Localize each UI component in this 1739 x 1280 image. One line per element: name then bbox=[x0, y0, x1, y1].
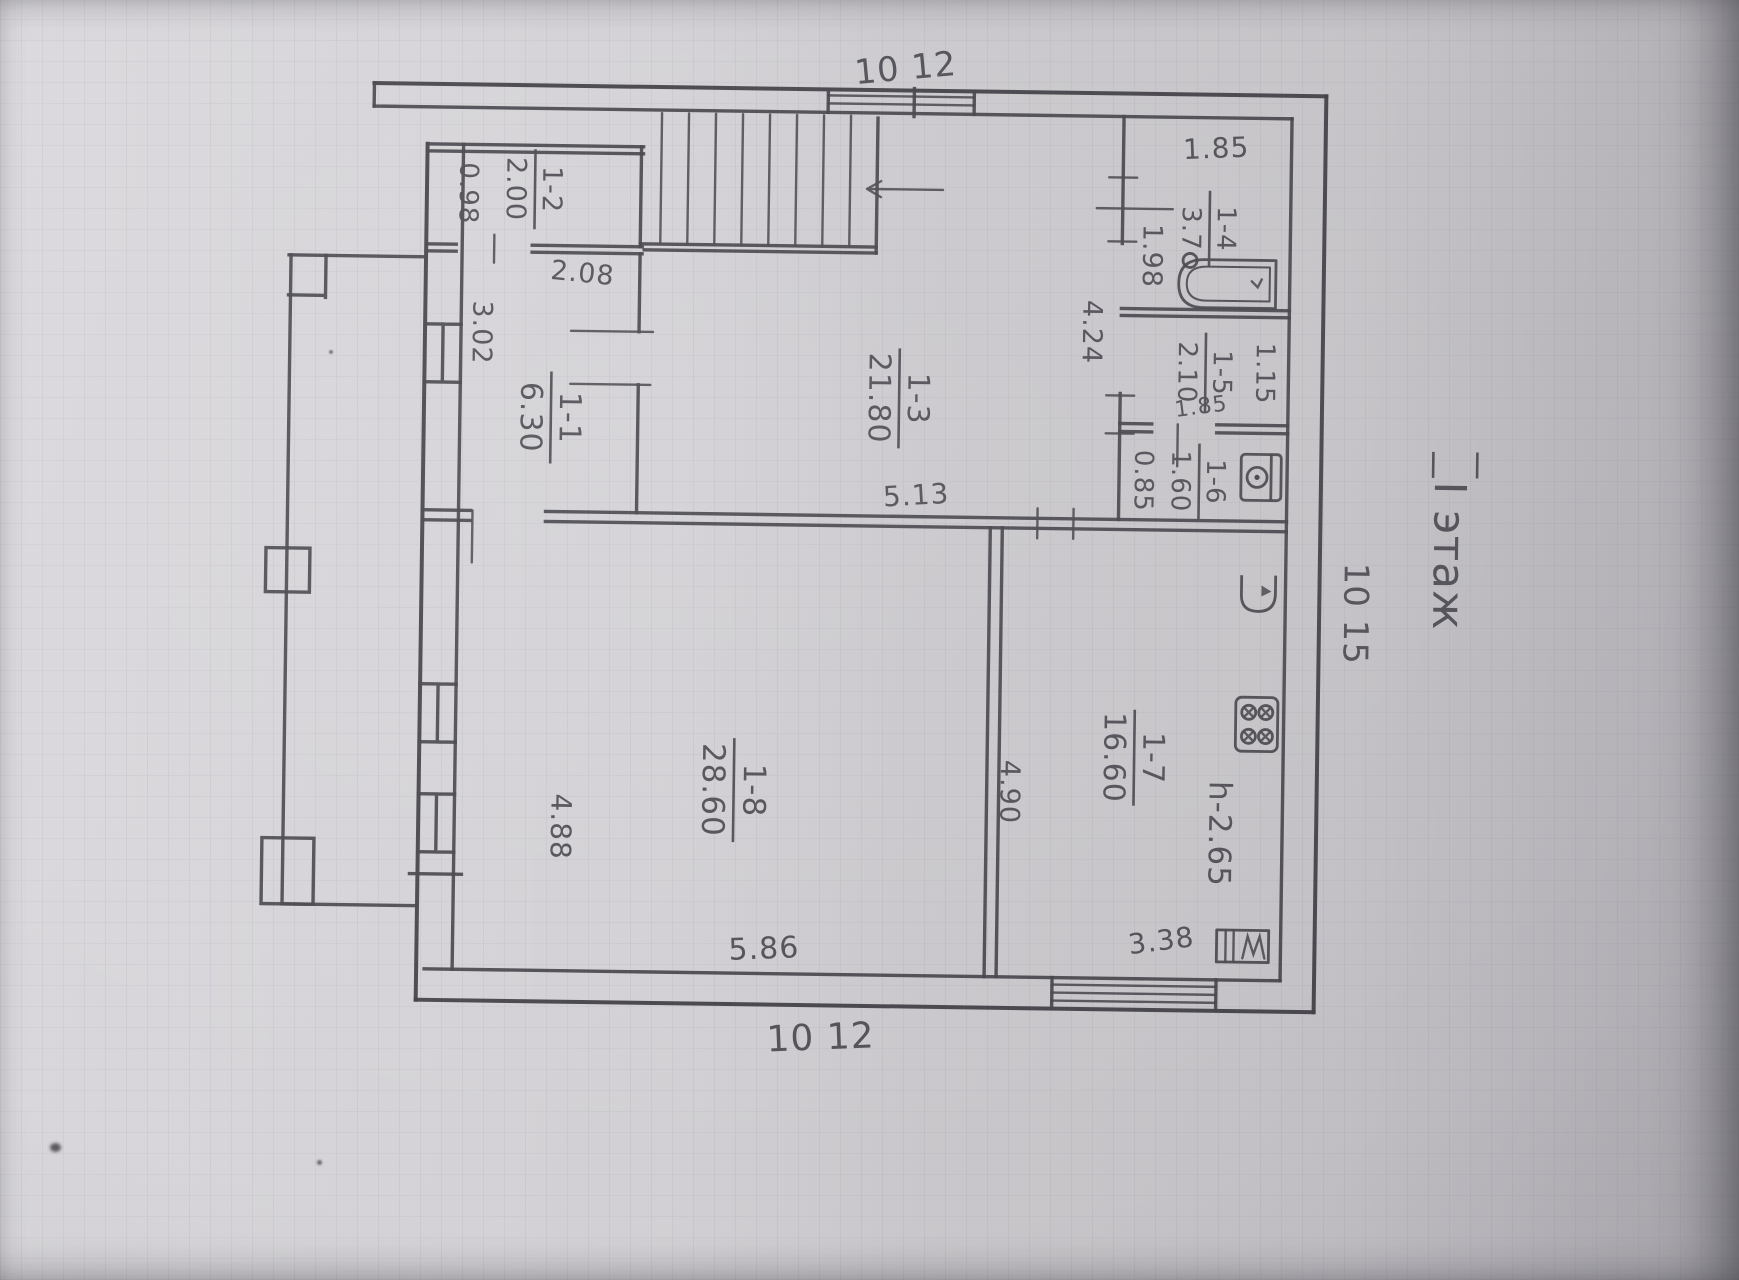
photo-speck bbox=[317, 1160, 322, 1165]
dim-r18-width: 5.86 bbox=[728, 930, 800, 968]
room-area: 3.7 bbox=[1175, 206, 1206, 251]
stairs bbox=[660, 113, 944, 254]
room-1-3-label: 1-3 21.80 bbox=[860, 348, 935, 449]
room-area: 6.30 bbox=[512, 382, 548, 453]
room-number: 1-1 bbox=[551, 392, 587, 444]
dim-kitchen-wall: 4.90 bbox=[993, 760, 1025, 825]
dim-bath-door: 1.98 bbox=[1136, 224, 1168, 289]
room-number: 1-2 bbox=[536, 166, 568, 214]
dim-r12-strip: 0.98 bbox=[453, 162, 484, 224]
room-area: 2.10 bbox=[1171, 341, 1202, 403]
toilet-icon bbox=[1241, 454, 1282, 501]
door-ticks bbox=[570, 331, 653, 385]
room-1-5-label: 1-5 2.10 bbox=[1171, 332, 1237, 413]
stairs-direction-arrow bbox=[867, 181, 943, 198]
plan-drawing: 10 12 10 12 10 15 2.08 0.98 3.02 5.13 4.… bbox=[259, 34, 1483, 1070]
dim-top-width: 10 12 bbox=[853, 44, 959, 93]
stove-icon bbox=[1235, 697, 1278, 752]
dim-r15-width: 1.15 bbox=[1249, 342, 1280, 404]
dim-hall-width: 5.13 bbox=[882, 477, 950, 514]
dim-r18-wall: 4.88 bbox=[544, 793, 578, 860]
stair-treads bbox=[660, 113, 851, 247]
floorplan-sketch: 10 12 10 12 10 15 2.08 0.98 3.02 5.13 4.… bbox=[0, 0, 1739, 1280]
room-1-8-label: 1-8 28.60 bbox=[694, 738, 772, 843]
room-area: 21.80 bbox=[860, 352, 896, 443]
bathtub-icon bbox=[1178, 253, 1276, 308]
dim-hall-height: 4.24 bbox=[1076, 300, 1108, 365]
dimension-labels: 10 12 10 12 10 15 2.08 0.98 3.02 5.13 4.… bbox=[441, 37, 1383, 1069]
photo-of-floorplan: 10 12 10 12 10 15 2.08 0.98 3.02 5.13 4.… bbox=[0, 0, 1739, 1280]
dim-kitchen-width: 3.38 bbox=[1126, 920, 1196, 961]
room-number: 1-6 bbox=[1200, 459, 1231, 505]
pencil-dot bbox=[329, 350, 333, 354]
floor-title-text: I этаж bbox=[1422, 481, 1475, 631]
room-number: 1-7 bbox=[1135, 732, 1171, 784]
floor-title: I этаж bbox=[1422, 452, 1477, 631]
room-number: 1-8 bbox=[735, 763, 772, 817]
room-1-7-label: 1-7 16.60 bbox=[1095, 709, 1170, 806]
room-number: 1-3 bbox=[900, 372, 936, 424]
sink-icon bbox=[1241, 575, 1275, 611]
dim-bottom-width: 10 12 bbox=[766, 1015, 876, 1060]
room-area: 16.60 bbox=[1095, 712, 1131, 803]
dim-stairs-width: 2.08 bbox=[549, 255, 616, 292]
porch-outline bbox=[261, 255, 426, 906]
bottom-window bbox=[1052, 978, 1216, 1011]
dim-r16-width: 0.85 bbox=[1128, 450, 1159, 512]
room-area: 28.60 bbox=[694, 743, 731, 837]
room-1-6-label: 1-6 1.60 bbox=[1164, 443, 1230, 520]
dim-right-height: 10 15 bbox=[1334, 562, 1375, 665]
porch-pillar bbox=[261, 838, 314, 905]
room-1-2-label: 1-2 2.00 bbox=[499, 149, 567, 230]
dim-r11-width: 3.02 bbox=[466, 300, 498, 365]
dim-bath-width: 1.85 bbox=[1182, 131, 1250, 167]
room-number: 1-5 bbox=[1206, 350, 1237, 396]
photo-speck bbox=[50, 1143, 61, 1152]
room-number: 1-4 bbox=[1210, 206, 1241, 252]
room-area: 1.60 bbox=[1165, 450, 1196, 512]
radiator-icon bbox=[1216, 930, 1268, 963]
room-area: 2.00 bbox=[500, 157, 532, 222]
dim-ceiling-height: h-2.65 bbox=[1200, 781, 1237, 887]
